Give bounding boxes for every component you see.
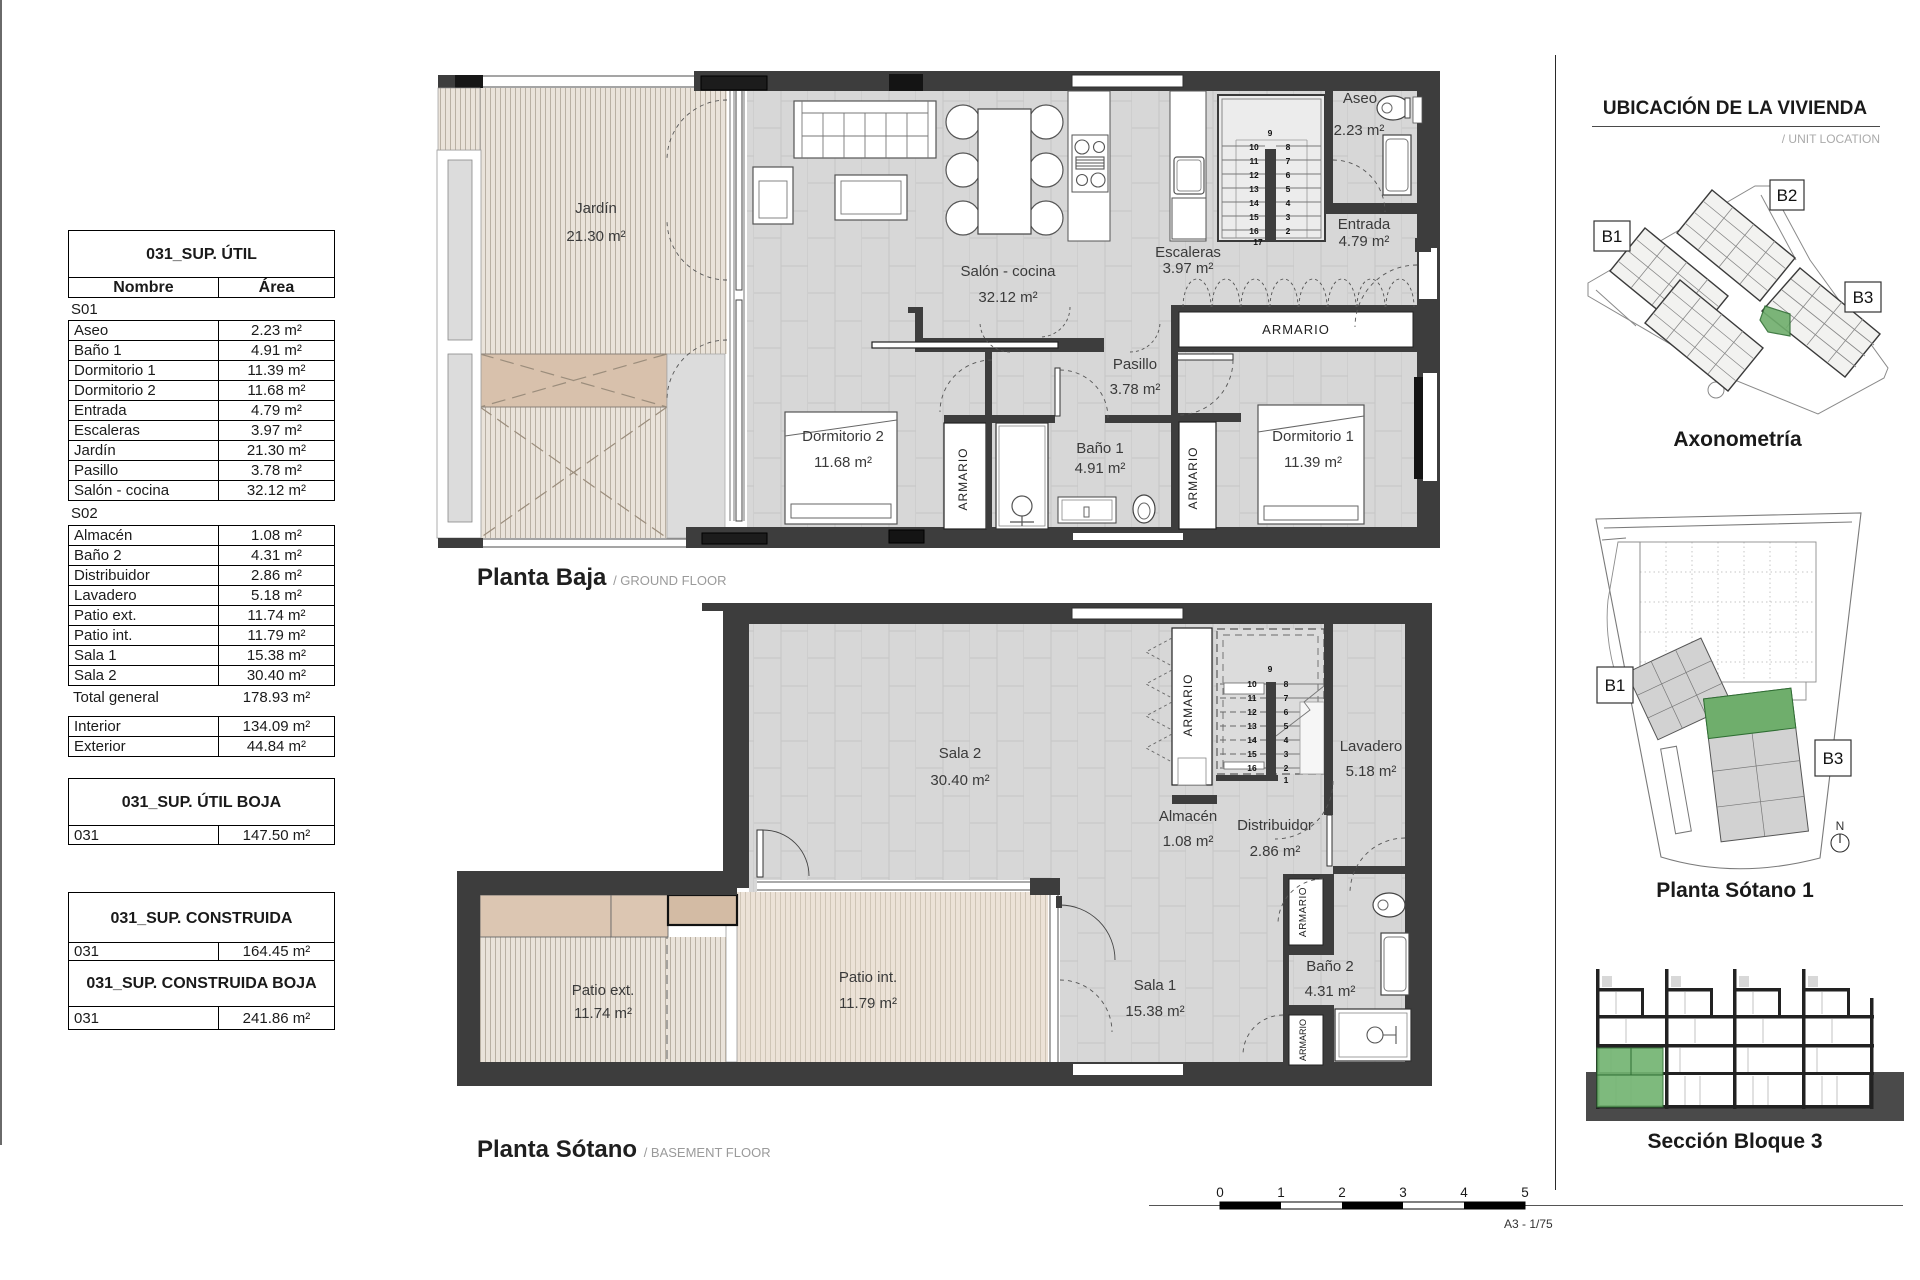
svg-text:2.23 m²: 2.23 m² xyxy=(1334,122,1385,139)
svg-text:2: 2 xyxy=(1284,763,1289,773)
svg-text:16: 16 xyxy=(1247,763,1257,773)
svg-text:11.39 m²: 11.39 m² xyxy=(1284,454,1342,471)
svg-text:Patio ext.: Patio ext. xyxy=(572,982,635,999)
svg-text:10: 10 xyxy=(1249,142,1259,152)
svg-text:Baño 2: Baño 2 xyxy=(1306,958,1354,975)
svg-text:Aseo: Aseo xyxy=(1343,90,1377,107)
svg-text:2: 2 xyxy=(1338,1185,1346,1200)
svg-text:11.74 m²: 11.74 m² xyxy=(574,1005,632,1022)
svg-text:ARMARIO: ARMARIO xyxy=(1298,1019,1308,1061)
svg-text:21.30 m²: 21.30 m² xyxy=(566,228,625,245)
svg-text:1: 1 xyxy=(1284,775,1289,785)
svg-text:Salón - cocina: Salón - cocina xyxy=(960,263,1056,280)
svg-text:1: 1 xyxy=(1277,1185,1285,1200)
svg-text:4.79 m²: 4.79 m² xyxy=(1339,233,1390,250)
svg-text:Sala 1: Sala 1 xyxy=(1134,977,1177,994)
svg-text:B1: B1 xyxy=(1602,227,1623,246)
svg-text:30.40 m²: 30.40 m² xyxy=(930,772,989,789)
svg-text:Sala 2: Sala 2 xyxy=(939,745,982,762)
svg-text:11: 11 xyxy=(1248,693,1257,703)
svg-text:11: 11 xyxy=(1250,156,1259,166)
svg-text:Escaleras: Escaleras xyxy=(1155,244,1221,261)
svg-text:14: 14 xyxy=(1249,198,1259,208)
svg-text:3.97 m²: 3.97 m² xyxy=(1163,260,1214,277)
svg-text:Distribuidor: Distribuidor xyxy=(1237,817,1313,834)
svg-text:4: 4 xyxy=(1284,735,1289,745)
svg-text:4.91 m²: 4.91 m² xyxy=(1075,460,1126,477)
svg-text:2: 2 xyxy=(1286,226,1291,236)
svg-text:Jardín: Jardín xyxy=(575,200,617,217)
svg-text:B3: B3 xyxy=(1823,749,1844,768)
svg-text:Patio int.: Patio int. xyxy=(839,969,897,986)
svg-text:3.78 m²: 3.78 m² xyxy=(1110,381,1161,398)
svg-text:4: 4 xyxy=(1286,198,1291,208)
svg-text:ARMARIO: ARMARIO xyxy=(1298,887,1309,937)
svg-text:17: 17 xyxy=(1253,237,1263,247)
svg-text:7: 7 xyxy=(1286,156,1291,166)
svg-text:32.12 m²: 32.12 m² xyxy=(978,289,1037,306)
svg-text:6: 6 xyxy=(1284,707,1289,717)
svg-text:13: 13 xyxy=(1249,184,1259,194)
svg-text:9: 9 xyxy=(1268,664,1273,674)
svg-text:14: 14 xyxy=(1247,735,1257,745)
svg-text:11.79 m²: 11.79 m² xyxy=(839,995,897,1012)
svg-text:Almacén: Almacén xyxy=(1159,808,1217,825)
svg-text:12: 12 xyxy=(1247,707,1257,717)
svg-text:Pasillo: Pasillo xyxy=(1113,356,1157,373)
svg-text:Entrada: Entrada xyxy=(1338,216,1391,233)
svg-text:16: 16 xyxy=(1249,226,1259,236)
svg-text:Baño 1: Baño 1 xyxy=(1076,440,1124,457)
svg-text:5: 5 xyxy=(1284,721,1289,731)
svg-text:10: 10 xyxy=(1247,679,1257,689)
svg-text:9: 9 xyxy=(1268,128,1273,138)
svg-text:3: 3 xyxy=(1286,212,1291,222)
svg-text:N: N xyxy=(1836,819,1845,833)
svg-text:ARMARIO: ARMARIO xyxy=(1186,446,1200,509)
svg-text:ARMARIO: ARMARIO xyxy=(1181,673,1195,736)
svg-text:A3 - 1/75: A3 - 1/75 xyxy=(1504,1217,1553,1231)
svg-text:13: 13 xyxy=(1247,721,1257,731)
svg-text:4.31 m²: 4.31 m² xyxy=(1305,983,1356,1000)
svg-text:15: 15 xyxy=(1247,749,1257,759)
svg-text:Dormitorio 2: Dormitorio 2 xyxy=(802,428,884,445)
svg-text:1.08 m²: 1.08 m² xyxy=(1163,833,1214,850)
svg-text:7: 7 xyxy=(1284,693,1289,703)
svg-text:3: 3 xyxy=(1399,1185,1407,1200)
svg-text:ARMARIO: ARMARIO xyxy=(1262,322,1330,337)
svg-text:3: 3 xyxy=(1284,749,1289,759)
svg-text:B3: B3 xyxy=(1853,288,1874,307)
svg-text:2.86 m²: 2.86 m² xyxy=(1250,843,1301,860)
svg-text:Dormitorio 1: Dormitorio 1 xyxy=(1272,428,1354,445)
svg-text:15: 15 xyxy=(1249,212,1259,222)
svg-text:5: 5 xyxy=(1521,1185,1529,1200)
svg-text:Lavadero: Lavadero xyxy=(1340,738,1403,755)
svg-text:B1: B1 xyxy=(1605,676,1626,695)
svg-text:8: 8 xyxy=(1284,679,1289,689)
svg-text:6: 6 xyxy=(1286,170,1291,180)
svg-text:ARMARIO: ARMARIO xyxy=(956,447,970,510)
svg-text:0: 0 xyxy=(1216,1185,1224,1200)
svg-text:4: 4 xyxy=(1460,1185,1468,1200)
svg-text:12: 12 xyxy=(1249,170,1259,180)
svg-text:15.38 m²: 15.38 m² xyxy=(1125,1003,1184,1020)
svg-text:11.68 m²: 11.68 m² xyxy=(814,454,872,471)
svg-text:5.18 m²: 5.18 m² xyxy=(1346,763,1397,780)
svg-text:5: 5 xyxy=(1286,184,1291,194)
svg-text:B2: B2 xyxy=(1777,186,1798,205)
svg-text:8: 8 xyxy=(1286,142,1291,152)
